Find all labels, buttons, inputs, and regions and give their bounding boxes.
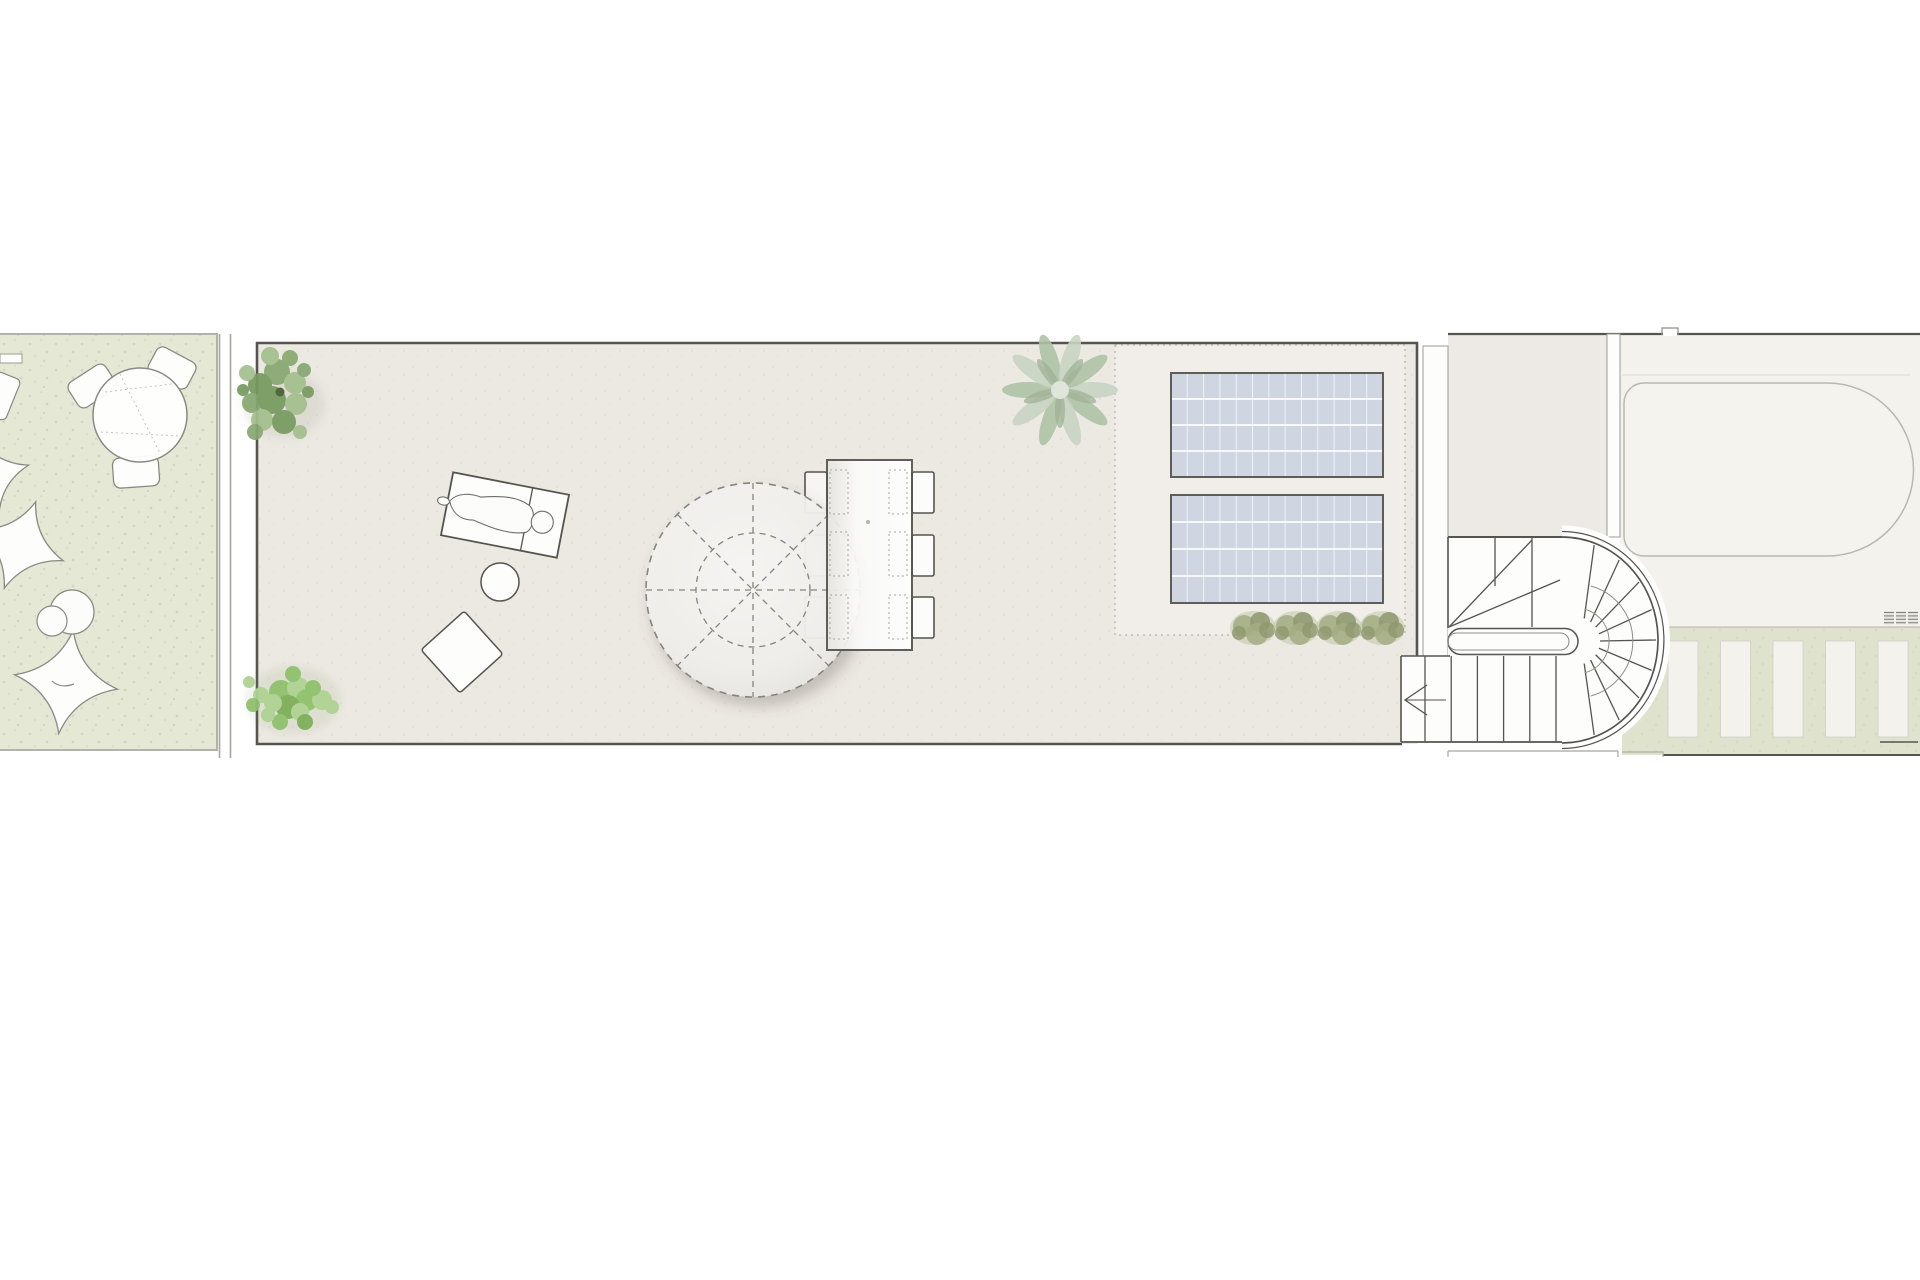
side-table-ball [481,563,519,601]
shrub [1361,626,1375,640]
shrub [1302,622,1318,638]
stair-central-rail-outer [1448,629,1578,655]
tree-trunk-dot [276,388,285,397]
dining-chair [912,472,934,513]
dining-chair [912,535,934,576]
garden-planter-box [0,354,22,363]
floor-plan-drawing [0,0,1920,1280]
stair-landing-room [1448,334,1607,537]
rooftop-pool-outline [1624,383,1914,556]
pergola-slat [1826,641,1856,737]
shrub [1388,622,1404,638]
pergola-slat [1721,641,1751,737]
wall-strip-left [1423,346,1448,656]
shrub [1259,622,1275,638]
garden-round-table [93,368,187,462]
agave-center [1051,381,1069,399]
shrub [1232,626,1246,640]
pouf [37,606,67,636]
dining-table [827,460,912,650]
terrace-area [257,343,1417,744]
shrub [1318,626,1332,640]
vent-grilles [1884,611,1918,625]
garden-area [0,334,217,750]
wall-strip-right [1607,334,1620,537]
facade-notch-mask [1663,331,1677,336]
shrub [1275,626,1289,640]
floor-plan-canvas [0,0,1920,1280]
dining-chair [912,597,934,638]
pergola-slat [1773,641,1803,737]
pergola-slat [1668,641,1698,737]
table-center-mark [866,520,870,524]
shrub [1345,622,1361,638]
pergola-slat [1878,641,1908,737]
